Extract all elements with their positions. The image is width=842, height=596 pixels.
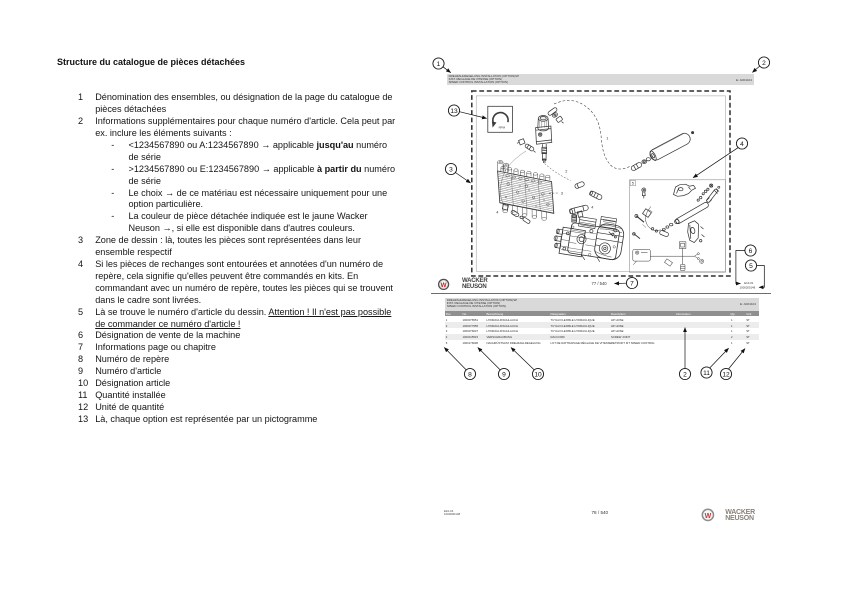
svg-text:3: 3 (449, 166, 453, 173)
svg-text:W: W (441, 282, 447, 289)
svg-text:4: 4 (740, 141, 744, 148)
svg-text:7: 7 (630, 280, 634, 287)
svg-text:12: 12 (722, 371, 730, 378)
svg-text:11: 11 (703, 370, 710, 377)
svg-text:NEUSON: NEUSON (725, 513, 754, 522)
svg-text:1: 1 (437, 61, 441, 68)
svg-text:2: 2 (762, 60, 766, 67)
svg-text:5: 5 (749, 263, 753, 270)
svg-text:4: 4 (496, 210, 499, 215)
svg-text:W: W (705, 513, 712, 520)
svg-text:10: 10 (534, 371, 542, 378)
svg-text:3: 3 (561, 191, 563, 196)
svg-text:9: 9 (502, 371, 506, 378)
svg-text:2: 2 (683, 371, 687, 378)
svg-text:6: 6 (577, 210, 579, 215)
svg-text:2: 2 (565, 169, 567, 174)
svg-text:RPM: RPM (499, 126, 506, 130)
svg-text:6: 6 (749, 248, 753, 255)
svg-text:13: 13 (450, 108, 458, 115)
svg-text:1000200148: 1000200148 (740, 285, 756, 289)
svg-text:4: 4 (591, 204, 594, 209)
svg-text:5: 5 (632, 182, 634, 186)
svg-text:1: 1 (606, 136, 608, 141)
svg-text:8: 8 (468, 371, 472, 378)
